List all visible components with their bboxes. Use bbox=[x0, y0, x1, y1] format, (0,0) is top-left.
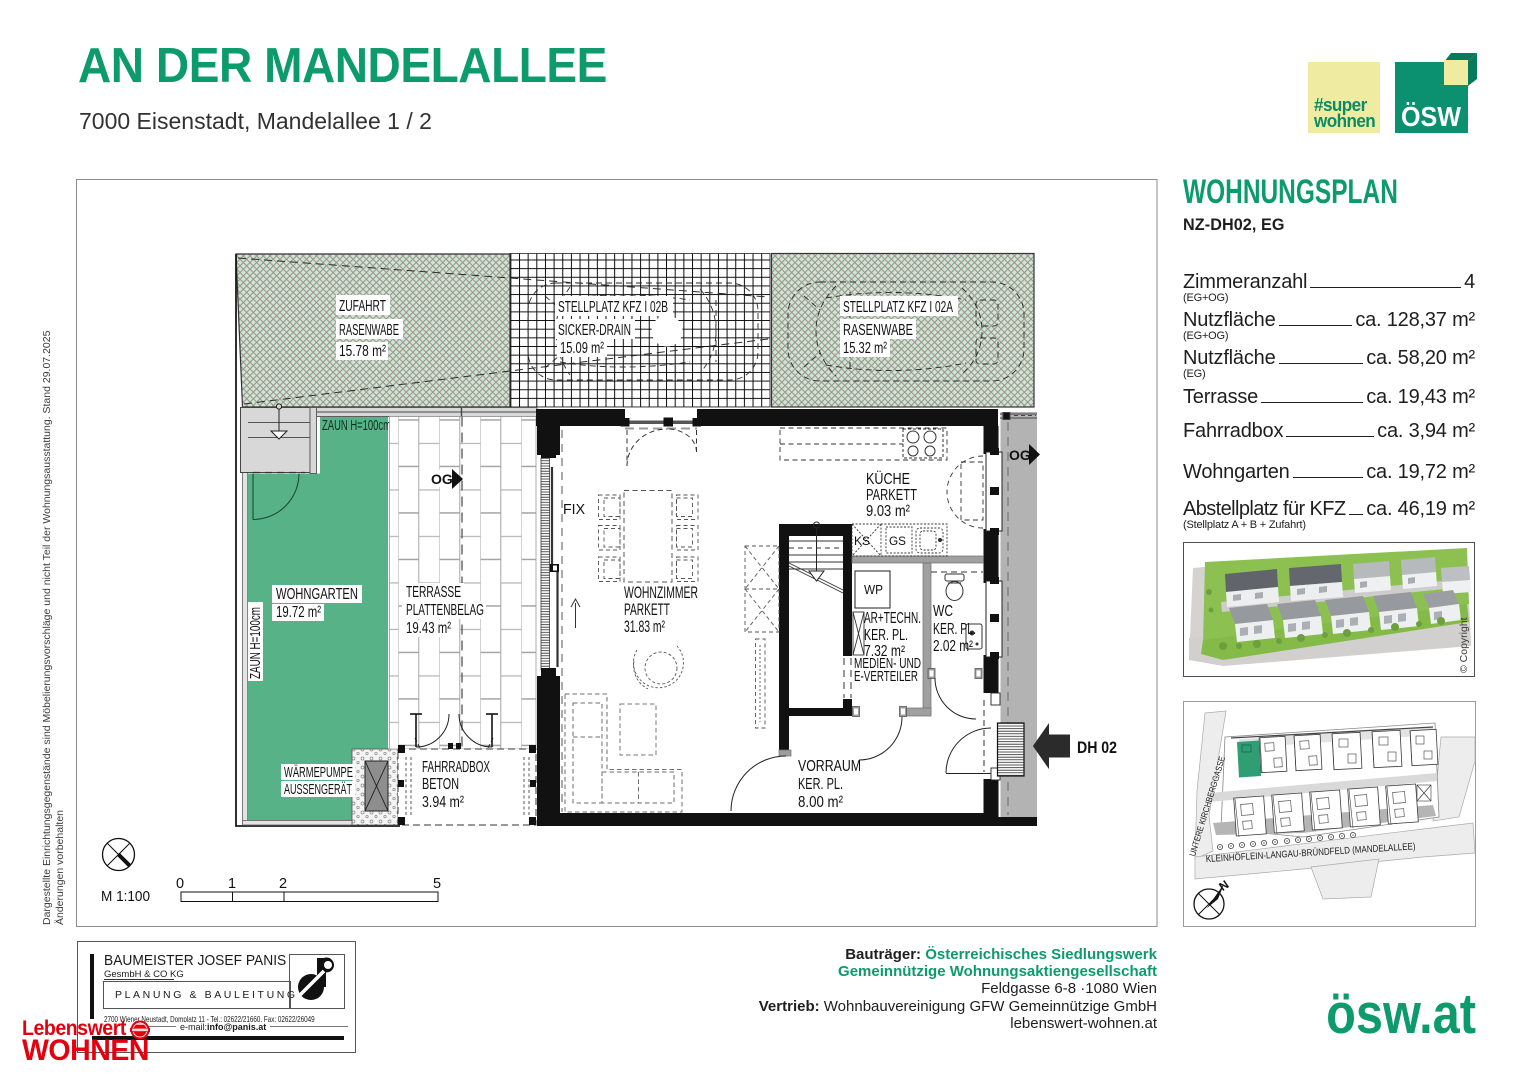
svg-text:FIX: FIX bbox=[563, 501, 585, 518]
svg-text:KER. PL.: KER. PL. bbox=[864, 627, 908, 644]
svg-text:STELLPLATZ KFZ I 02B: STELLPLATZ KFZ I 02B bbox=[558, 299, 668, 316]
svg-text:ZAUN H=100cm: ZAUN H=100cm bbox=[322, 417, 391, 434]
svg-text:ZAUN H=100cm: ZAUN H=100cm bbox=[247, 607, 264, 679]
svg-text:WOHNZIMMER: WOHNZIMMER bbox=[624, 584, 698, 602]
svg-text:PLATTENBELAG: PLATTENBELAG bbox=[406, 602, 484, 619]
svg-text:15.09 m²: 15.09 m² bbox=[560, 340, 604, 357]
svg-text:AR+TECHN.: AR+TECHN. bbox=[864, 610, 921, 627]
svg-text:31.83 m²: 31.83 m² bbox=[624, 618, 665, 636]
svg-text:WOHNGARTEN: WOHNGARTEN bbox=[276, 586, 358, 603]
svg-text:VORRAUM: VORRAUM bbox=[798, 758, 861, 775]
svg-text:KS: KS bbox=[854, 534, 870, 548]
svg-text:0: 0 bbox=[176, 876, 184, 892]
svg-text:WÄRMEPUMPE: WÄRMEPUMPE bbox=[284, 764, 353, 781]
svg-text:GS: GS bbox=[889, 534, 906, 548]
svg-text:2.02 m²: 2.02 m² bbox=[933, 638, 973, 655]
svg-text:PARKETT: PARKETT bbox=[624, 601, 670, 619]
svg-text:TERRASSE: TERRASSE bbox=[406, 584, 461, 601]
svg-text:DH 02: DH 02 bbox=[1077, 738, 1117, 757]
svg-text:WC: WC bbox=[933, 603, 953, 620]
svg-text:SICKER-DRAIN: SICKER-DRAIN bbox=[558, 322, 631, 339]
svg-text:1: 1 bbox=[228, 876, 236, 892]
svg-text:19.43 m²: 19.43 m² bbox=[406, 620, 451, 637]
svg-text:PARKETT: PARKETT bbox=[866, 487, 917, 504]
svg-text:9.03 m²: 9.03 m² bbox=[866, 503, 911, 520]
svg-text:BETON: BETON bbox=[422, 776, 459, 793]
svg-text:KER. PL.: KER. PL. bbox=[798, 776, 843, 793]
svg-text:3.94 m²: 3.94 m² bbox=[422, 794, 465, 811]
svg-text:OG: OG bbox=[1009, 447, 1031, 463]
svg-text:E-VERTEILER: E-VERTEILER bbox=[854, 669, 918, 685]
svg-text:FAHRRADBOX: FAHRRADBOX bbox=[422, 759, 490, 776]
svg-text:ZUFAHRT: ZUFAHRT bbox=[339, 298, 386, 315]
svg-text:AUSSENGERÄT: AUSSENGERÄT bbox=[284, 781, 352, 798]
svg-text:2: 2 bbox=[279, 876, 287, 892]
svg-text:RASENWABE: RASENWABE bbox=[843, 322, 913, 339]
svg-text:8.00 m²: 8.00 m² bbox=[798, 794, 844, 811]
svg-text:15.32 m²: 15.32 m² bbox=[843, 340, 887, 357]
svg-text:15.78 m²: 15.78 m² bbox=[339, 343, 387, 360]
svg-text:19.72 m²: 19.72 m² bbox=[276, 604, 321, 621]
svg-text:KÜCHE: KÜCHE bbox=[866, 470, 910, 488]
svg-text:RASENWABE: RASENWABE bbox=[339, 322, 399, 339]
svg-text:M 1:100: M 1:100 bbox=[101, 888, 150, 905]
svg-text:OG: OG bbox=[431, 471, 453, 487]
svg-text:5: 5 bbox=[433, 876, 441, 892]
svg-text:KER. PL.: KER. PL. bbox=[933, 621, 976, 638]
svg-text:WP: WP bbox=[864, 583, 883, 597]
svg-text:STELLPLATZ KFZ I 02A: STELLPLATZ KFZ I 02A bbox=[843, 299, 953, 316]
